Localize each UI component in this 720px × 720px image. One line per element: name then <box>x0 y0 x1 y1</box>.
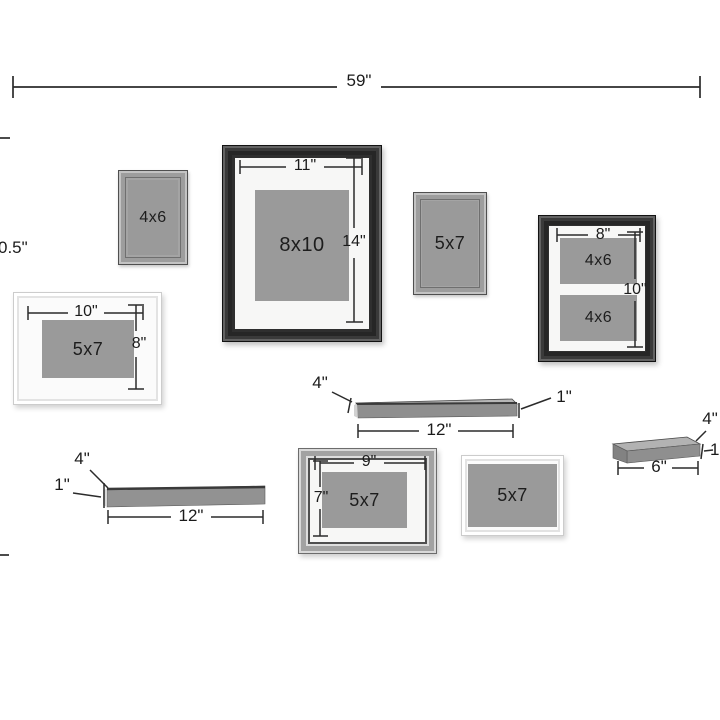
center-shelf-shape <box>354 399 517 418</box>
photo-size-label: 5x7 <box>497 485 528 506</box>
photo-size-label: 8x10 <box>279 234 324 257</box>
frame-5x7-silver: 5x7 <box>298 448 437 554</box>
left-shelf-depth-label: 4" <box>68 450 96 469</box>
photo-opening-top: 4x6 <box>560 238 637 284</box>
right-shelf-depth-label: 4" <box>697 410 720 429</box>
photo-size-label: 5x7 <box>73 339 104 360</box>
left-shelf-shape <box>103 486 265 507</box>
photo-opening: 8x10 <box>255 190 349 301</box>
frame-5x7-white-right: 5x7 <box>461 455 564 536</box>
overall-width-dimension <box>13 76 700 98</box>
right-shelf-shape <box>613 437 700 463</box>
photo-opening-bottom: 4x6 <box>560 295 637 341</box>
overall-width-label: 59" <box>336 72 382 91</box>
left-shelf-dimension-lines <box>73 470 263 524</box>
frame-5x7-white-left: 5x7 <box>13 292 162 405</box>
right-shelf-length-label: 6" <box>644 458 674 477</box>
center-shelf-length-label: 12" <box>421 421 457 440</box>
frame-5x7-gray: 5x7 <box>413 192 487 295</box>
photo-size-label: 4x6 <box>585 252 612 270</box>
frame-double-4x6-black: 4x6 4x6 <box>538 215 656 362</box>
gallery-wall-dimension-diagram: 4x6 8x10 5x7 4x6 4x6 5x7 5x7 5x <box>0 0 720 720</box>
photo-opening: 4x6 <box>128 180 178 255</box>
left-height-label: 0.5" <box>0 239 42 258</box>
left-height-dimension <box>0 138 10 555</box>
frame-8x10-black: 8x10 <box>222 145 382 342</box>
center-shelf-thickness-label: 1" <box>550 388 578 407</box>
photo-opening: 5x7 <box>422 201 478 286</box>
frame-4x6-gray: 4x6 <box>118 170 188 265</box>
center-shelf-dimension-lines <box>332 392 551 438</box>
photo-size-label: 4x6 <box>139 209 166 227</box>
photo-size-label: 5x7 <box>435 233 466 254</box>
left-shelf-thickness-label: 1" <box>48 476 76 495</box>
photo-opening: 5x7 <box>42 320 134 378</box>
photo-opening: 5x7 <box>322 472 407 528</box>
photo-opening: 5x7 <box>468 464 557 527</box>
photo-size-label: 5x7 <box>349 490 380 511</box>
right-shelf-thickness-label: 1" <box>710 441 720 460</box>
photo-size-label: 4x6 <box>585 309 612 327</box>
right-shelf-dimension-lines <box>618 431 713 475</box>
center-shelf-depth-label: 4" <box>306 374 334 393</box>
left-shelf-length-label: 12" <box>172 507 210 526</box>
